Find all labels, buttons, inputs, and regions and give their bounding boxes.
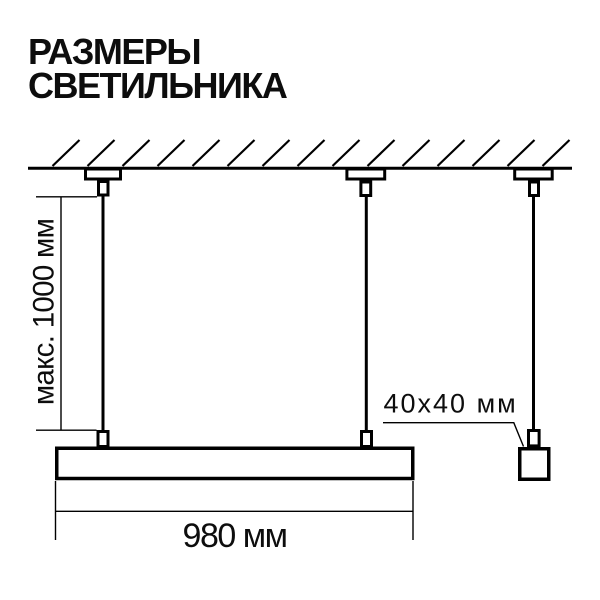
svg-text:40х40 мм: 40х40 мм <box>384 389 518 419</box>
svg-text:980 мм: 980 мм <box>183 517 287 555</box>
svg-text:СВЕТИЛЬНИКА: СВЕТИЛЬНИКА <box>28 65 288 106</box>
svg-text:макс. 1000 мм: макс. 1000 мм <box>28 219 61 405</box>
